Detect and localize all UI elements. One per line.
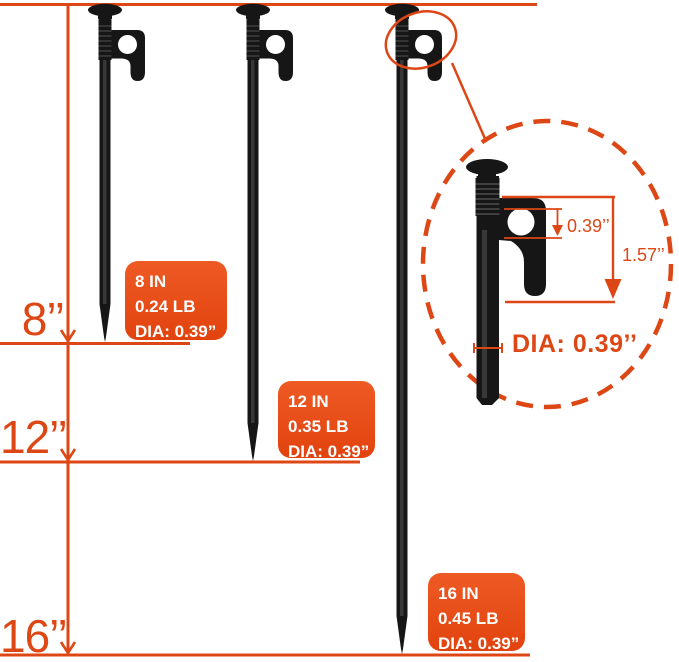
hook-hole — [118, 35, 137, 54]
spec-size: 16 IN — [438, 581, 525, 606]
spec-size: 12 IN — [288, 389, 375, 414]
detail-hook-hole — [508, 209, 535, 236]
spec-card-12in: 12 IN 0.35 LB DIA: 0.39” — [278, 381, 375, 458]
stake-tip — [248, 423, 259, 461]
knurl-ridges — [396, 26, 409, 56]
stake-tip — [100, 304, 111, 342]
ruler-lines — [0, 3, 537, 655]
ruler-mark-16in: 16’’ — [0, 613, 64, 659]
head-height-arrow-icon — [605, 279, 622, 299]
ruler-mark-12in: 12’’ — [0, 414, 64, 460]
spec-card-16in: 16 IN 0.45 LB DIA: 0.39” — [428, 573, 525, 651]
hole-dim-arrow-icon — [552, 225, 563, 236]
stake-16in — [385, 4, 442, 654]
hole-dimension-label: 0.39’’ — [567, 216, 610, 236]
stake-cap — [88, 4, 122, 16]
spec-weight: 0.24 LB — [135, 294, 227, 319]
callout-connector-line — [452, 63, 486, 141]
head-height-label: 1.57’’ — [622, 245, 665, 265]
knurl-ridges — [247, 26, 260, 56]
detail-cap — [466, 159, 508, 175]
spec-diameter: DIA: 0.39” — [438, 631, 525, 656]
hook-hole — [415, 35, 434, 54]
ruler-mark-8in: 8’’ — [0, 296, 64, 342]
spec-diameter: DIA: 0.39” — [135, 319, 227, 344]
spec-card-8in: 8 IN 0.24 LB DIA: 0.39” — [125, 261, 227, 340]
stake-tip — [397, 616, 408, 654]
spec-weight: 0.45 LB — [438, 606, 525, 631]
spec-size: 8 IN — [135, 269, 227, 294]
hook-hole — [266, 35, 285, 54]
spec-diameter: DIA: 0.39” — [288, 439, 375, 464]
knurl-ridges — [99, 26, 112, 56]
detail-knurl-ridges — [476, 184, 500, 214]
spec-weight: 0.35 LB — [288, 414, 375, 439]
stake-cap — [236, 4, 270, 16]
diameter-label: DIA: 0.39’’ — [512, 331, 637, 357]
tent-stake-dimension-diagram: 8’’ 12’’ 16’’ 8 IN 0.24 LB DIA: 0.39” 12… — [0, 0, 679, 662]
